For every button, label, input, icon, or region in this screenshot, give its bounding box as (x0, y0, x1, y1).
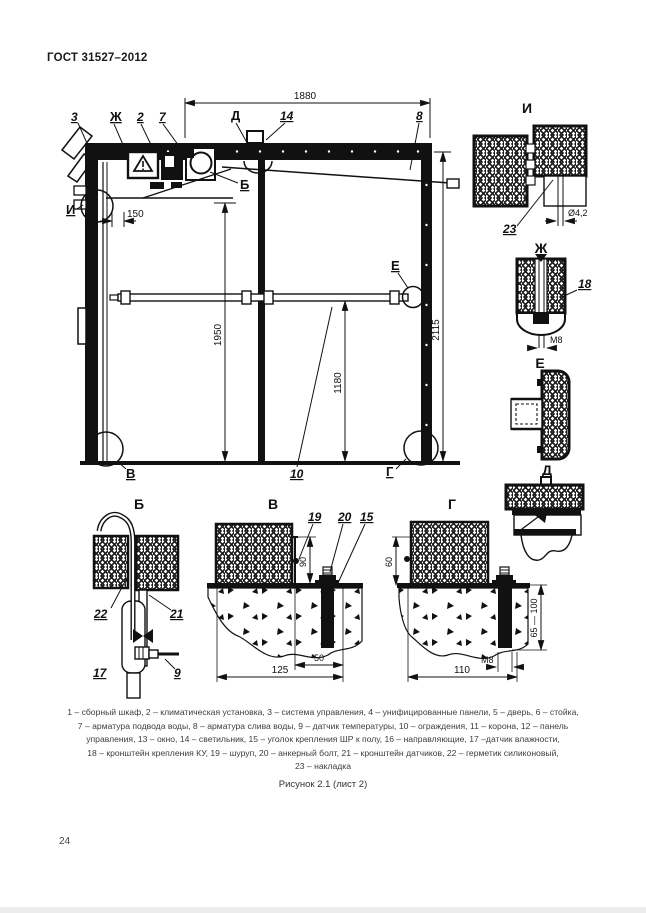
detail-i-title: И (522, 100, 532, 116)
dim-1950: 1950 (213, 323, 224, 346)
callout-10: 10 (290, 467, 304, 481)
legend-line: 1 – сборный шкаф, 2 – климатическая уста… (0, 706, 646, 720)
detail-i-dim-dia: Ø4,2 (568, 208, 588, 218)
detail-b-title: Б (134, 496, 144, 512)
dim-150: 150 (127, 209, 144, 220)
dim-2115: 2115 (431, 319, 442, 341)
page-edge (0, 907, 646, 913)
detail-e: Е (511, 355, 569, 459)
detail-v-dim-125: 125 (272, 665, 289, 676)
detail-g-dim-110: 110 (454, 665, 470, 676)
legend-line: 23 – накладка (0, 760, 646, 774)
detail-zh-title: Ж (534, 240, 548, 256)
detail-b-callout-17: 17 (93, 666, 108, 680)
detail-g-title: Г (448, 496, 456, 512)
detail-b-callout-21: 21 (169, 607, 184, 621)
side-window (78, 308, 86, 344)
dim-1180: 1180 (333, 372, 344, 394)
detail-v-callout-19: 19 (308, 510, 322, 524)
callout-7: 7 (159, 110, 167, 124)
detail-zh-callout-18: 18 (578, 277, 592, 291)
detail-b: Б 22 21 17 9 (93, 496, 184, 698)
callout-3: 3 (71, 110, 78, 124)
legend-line: 7 – арматура подвода воды, 8 – арматура … (0, 720, 646, 734)
detail-v-callout-20: 20 (337, 510, 352, 524)
callout-14: 14 (280, 109, 294, 123)
detail-b-callout-22: 22 (93, 607, 108, 621)
figure-2-1-drawing: 1880 2115 1950 1180 150 3 Ж 2 7 Д (0, 0, 646, 913)
callout-d: Д (231, 108, 241, 123)
detail-d: Д (506, 462, 583, 560)
document-page: ГОСТ 31527–2012 (0, 0, 646, 913)
detail-i-callout-23: 23 (502, 222, 517, 236)
temperature-sensor (135, 647, 179, 659)
callout-b: Б (240, 177, 249, 192)
detail-v-title: В (268, 496, 278, 512)
callout-zh: Ж (109, 109, 122, 124)
figure-legend: 1 – сборный шкаф, 2 – климатическая уста… (0, 706, 646, 774)
detail-v-callout-15: 15 (360, 510, 374, 524)
detail-i: И Ø4,2 23 (474, 100, 588, 236)
callout-e: Е (391, 258, 400, 273)
detail-g-dim-65-100: 65 — 100 (529, 598, 539, 637)
callout-v: В (126, 466, 135, 481)
legend-line: управления, 13 – окно, 14 – светильник, … (0, 733, 646, 747)
screw (404, 556, 410, 562)
callout-i: И (66, 202, 75, 217)
detail-v-dim-50: 50 (314, 653, 324, 663)
detail-g-dim-m8: М8 (481, 655, 494, 665)
figure-caption: Рисунок 2.1 (лист 2) (0, 779, 646, 790)
callout-g: Г (386, 464, 394, 479)
detail-zh: Ж М8 18 (517, 240, 592, 348)
dim-1880: 1880 (294, 91, 317, 102)
detail-e-title: Е (535, 355, 544, 371)
beam-rivets (167, 150, 428, 426)
concrete-floor (208, 588, 362, 658)
detail-v: В 90 19 20 15 (207, 496, 374, 682)
page-number: 24 (59, 836, 70, 847)
detail-zh-dim-m8: М8 (550, 335, 563, 345)
detail-d-title: Д (542, 462, 552, 478)
legend-line: 18 – кронштейн крепления КУ, 19 – шуруп,… (0, 747, 646, 761)
callout-8: 8 (416, 109, 423, 123)
detail-b-callout-9: 9 (174, 666, 181, 680)
callout-2: 2 (136, 110, 144, 124)
detail-g-dim-60: 60 (384, 557, 394, 567)
